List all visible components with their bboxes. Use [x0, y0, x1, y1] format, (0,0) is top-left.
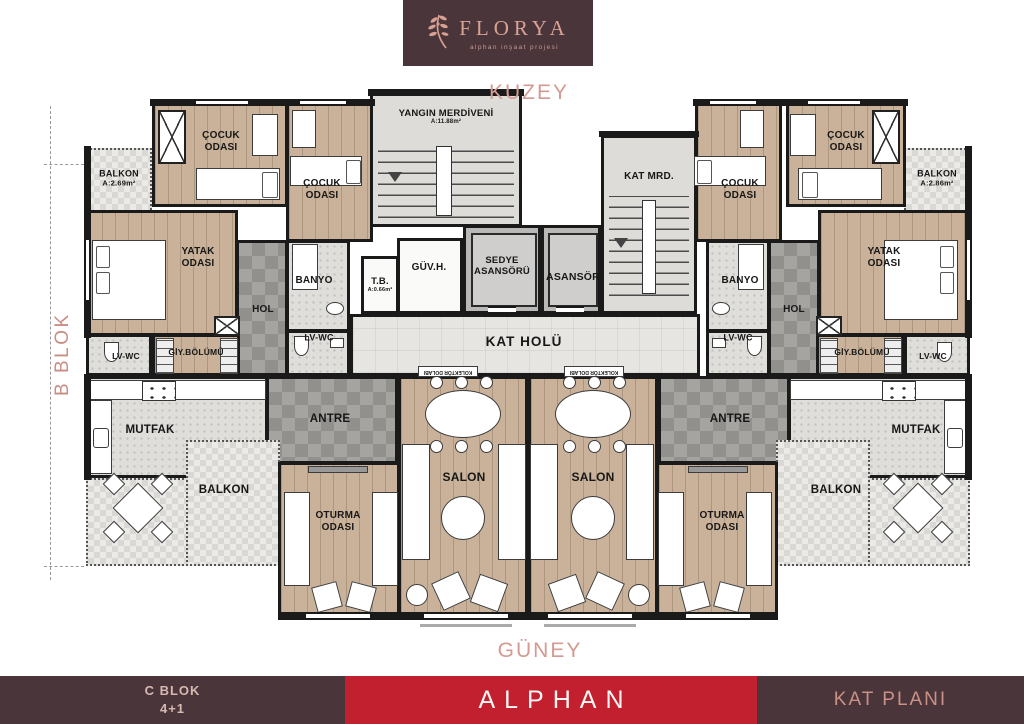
window — [84, 240, 91, 300]
label-tb: T.B.A:0.66m² — [368, 276, 393, 294]
elevator-door — [488, 306, 516, 314]
label-entry: ANTRE — [710, 413, 751, 427]
wardrobe-icon — [872, 110, 900, 164]
sink-icon — [712, 302, 730, 315]
tv-icon — [688, 466, 748, 473]
kitchen-counter — [90, 380, 266, 400]
label-child-bedroom: ÇOCUKODASI — [721, 178, 759, 202]
north-label: KUZEY — [489, 81, 569, 105]
shaft-icon — [816, 316, 842, 336]
stair-rail — [642, 200, 656, 294]
window — [686, 612, 750, 620]
sofa-icon — [372, 492, 398, 586]
room-balcony-bottom-left-b — [186, 440, 280, 566]
pillow-icon — [262, 172, 278, 198]
sofa-icon — [498, 444, 526, 560]
chair-icon — [480, 376, 493, 389]
desk-icon — [790, 114, 816, 156]
round-table-icon — [571, 496, 615, 540]
sofa-icon — [530, 444, 558, 560]
label-master-bedroom: YATAKODASI — [867, 246, 900, 270]
shaft-icon — [214, 316, 240, 336]
label-stretcher-elevator: SEDYEASANSÖRÜ — [474, 255, 530, 277]
label-balcony: BALKON — [199, 484, 249, 498]
footer-block-name: C BLOK — [145, 682, 201, 700]
desk-icon — [740, 110, 764, 148]
floor-plan-page: { "brand": { "logo_title": "FLORYA", "lo… — [0, 0, 1024, 724]
label-security: GÜV.H. — [412, 262, 447, 274]
window — [808, 99, 860, 106]
elevator-door — [556, 306, 584, 314]
label-dressing: GİY.BÖLÜMÜ — [168, 347, 223, 357]
round-table-icon — [441, 496, 485, 540]
footer-sheet-title: KAT PLANI — [757, 676, 1024, 724]
desk-icon — [252, 114, 278, 156]
chair-icon — [563, 376, 576, 389]
stove-icon — [142, 381, 176, 401]
chair-icon — [613, 440, 626, 453]
stair-rail — [436, 146, 452, 216]
footer-block-info: C BLOK 4+1 — [0, 676, 345, 724]
pillow-icon — [940, 272, 954, 294]
label-dressing: GİY.BÖLÜMÜ — [834, 347, 889, 357]
label-sitting-room: OTURMAODASI — [315, 510, 360, 534]
label-floor-stairs: KAT MRD. — [624, 171, 674, 183]
label-fire-stairs: YANGIN MERDİVENİA:11.88m² — [399, 108, 494, 126]
label-living-room: SALON — [443, 470, 486, 484]
footer-unit-type: 4+1 — [160, 700, 185, 718]
dining-table-icon — [555, 390, 631, 438]
logo-title: FLORYA — [459, 16, 570, 41]
pillow-icon — [96, 246, 110, 268]
label-balcony: BALKON — [811, 484, 861, 498]
label-balcony-tl: BALKONA:2.69m² — [99, 168, 139, 187]
window — [300, 99, 346, 106]
window-sill — [420, 624, 512, 627]
centerline — [44, 566, 84, 567]
sink-icon — [326, 302, 344, 315]
stove-icon — [882, 381, 916, 401]
pillow-icon — [346, 160, 361, 184]
stair-arrow-icon — [388, 172, 402, 182]
label-balcony-tr: BALKONA:2.86m² — [917, 168, 957, 187]
chair-icon — [588, 440, 601, 453]
label-living-room: SALON — [572, 470, 615, 484]
label-bathroom: BANYO — [721, 275, 758, 287]
label-master-bedroom: YATAKODASI — [181, 246, 214, 270]
chair-icon — [480, 440, 493, 453]
window — [306, 612, 370, 620]
pouf-icon — [406, 584, 428, 606]
sink-icon — [93, 428, 109, 448]
wall-segment — [599, 131, 699, 137]
label-floor-hall: KAT HOLÜ — [486, 334, 563, 350]
label-wc: LV-WC — [919, 351, 947, 361]
wardrobe-icon — [158, 110, 186, 164]
chair-icon — [588, 376, 601, 389]
branch-icon — [426, 12, 452, 55]
kitchen-counter — [790, 380, 966, 400]
label-child-bedroom: ÇOCUKODASI — [303, 178, 341, 202]
chair-icon — [455, 376, 468, 389]
label-wc: LV-WC — [723, 333, 752, 344]
window-sill — [544, 624, 636, 627]
logo-box: FLORYA alphan inşaat projesi — [403, 0, 593, 66]
room-security — [397, 238, 463, 314]
label-elevator: ASANSÖR — [546, 271, 600, 283]
centerline — [44, 164, 84, 165]
label-collector: KOLEKTÖR DOLABI — [424, 368, 473, 374]
window — [424, 612, 508, 620]
pillow-icon — [96, 272, 110, 294]
label-sitting-room: OTURMAODASI — [699, 510, 744, 534]
room-balcony-bottom-right-b — [776, 440, 870, 566]
dining-table-icon — [425, 390, 501, 438]
window — [196, 99, 248, 106]
footer-brand: ALPHAN — [345, 676, 757, 724]
chair-icon — [455, 440, 468, 453]
chair-icon — [430, 440, 443, 453]
sofa-icon — [626, 444, 654, 560]
footer-bar: C BLOK 4+1 ALPHAN KAT PLANI — [0, 676, 1024, 724]
pillow-icon — [697, 160, 712, 184]
south-label: GÜNEY — [498, 639, 583, 663]
stair-arrow-icon — [614, 238, 628, 248]
sofa-icon — [746, 492, 772, 586]
sofa-icon — [658, 492, 684, 586]
centerline — [50, 106, 51, 580]
chair-icon — [430, 376, 443, 389]
chair-icon — [563, 440, 576, 453]
logo-subtitle: alphan inşaat projesi — [470, 44, 559, 51]
sofa-icon — [402, 444, 430, 560]
label-bathroom: BANYO — [295, 275, 332, 287]
window — [710, 99, 756, 106]
block-side-label: B BLOK — [52, 300, 74, 396]
window — [965, 240, 972, 300]
label-kitchen: MUTFAK — [125, 424, 174, 438]
wall-segment — [84, 374, 91, 480]
wall-segment — [965, 374, 972, 480]
sink-icon — [947, 428, 963, 448]
label-wc: LV-WC — [112, 351, 140, 361]
window — [548, 612, 632, 620]
label-collector: KOLEKTÖR DOLABI — [570, 368, 619, 374]
pouf-icon — [628, 584, 650, 606]
label-entry: ANTRE — [310, 413, 351, 427]
pillow-icon — [802, 172, 818, 198]
label-wc: LV-WC — [304, 333, 333, 344]
chair-icon — [613, 376, 626, 389]
label-kitchen: MUTFAK — [891, 424, 940, 438]
pillow-icon — [940, 246, 954, 268]
sofa-icon — [284, 492, 310, 586]
desk-icon — [292, 110, 316, 148]
tv-icon — [308, 466, 368, 473]
label-child-bedroom: ÇOCUKODASI — [827, 130, 865, 154]
label-child-bedroom: ÇOCUKODASI — [202, 130, 240, 154]
label-hall: HOL — [252, 304, 274, 316]
label-hall: HOL — [783, 304, 805, 316]
